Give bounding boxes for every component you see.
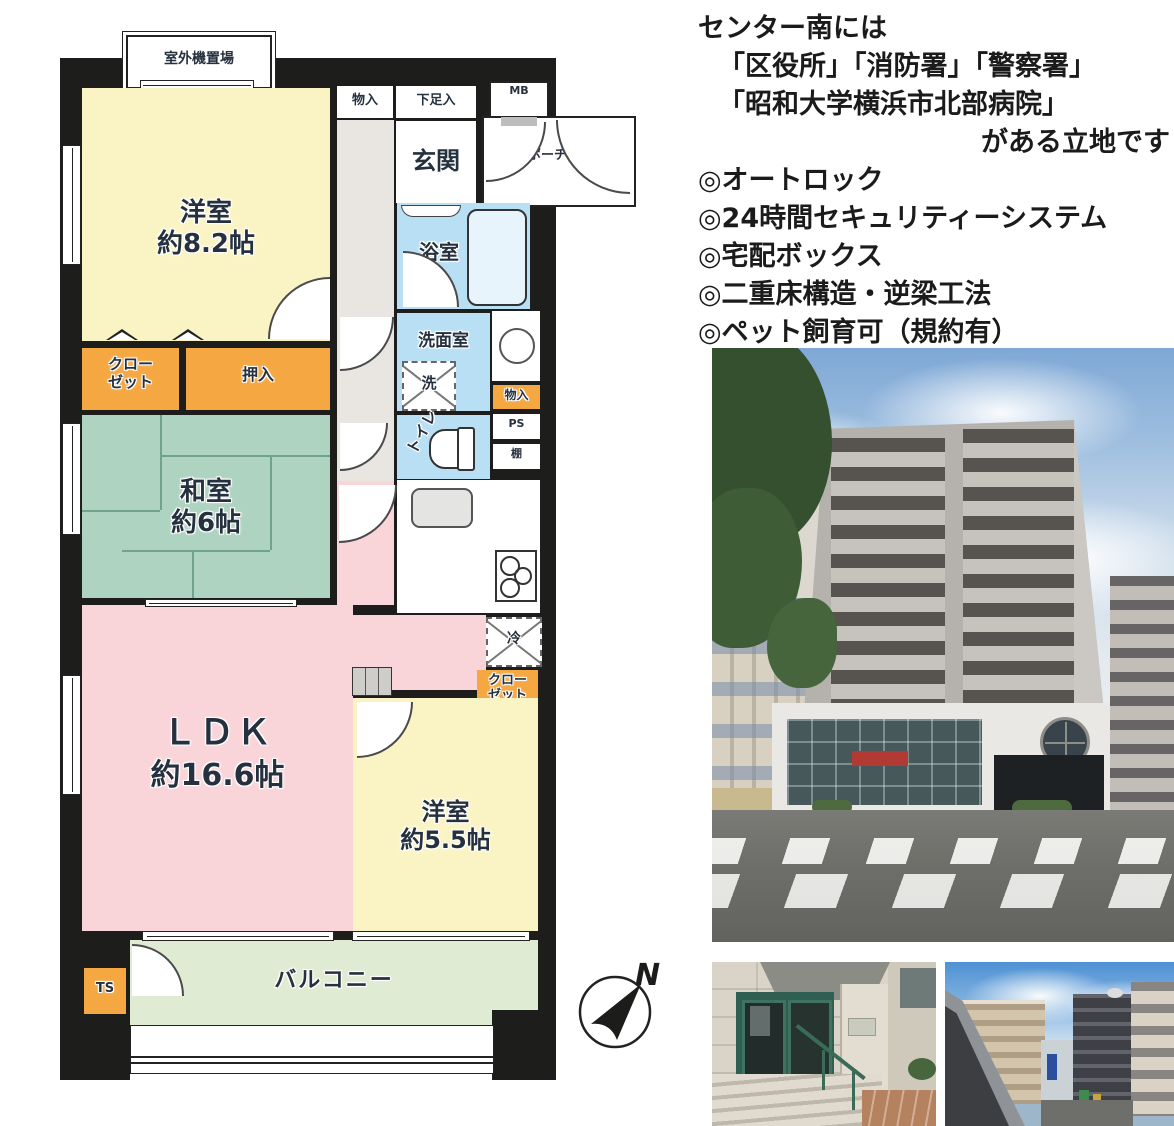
upper-window (900, 968, 936, 1008)
window (62, 423, 81, 535)
tree-branch (767, 598, 837, 688)
real-estate-flyer: 室外機置場 洋室 約8.2帖 物入 下足入 玄関 ポーチ (0, 0, 1174, 1126)
shelf: 棚 (493, 444, 540, 469)
japanese-room-name: 和室 (180, 477, 232, 507)
blue-sign (1047, 1054, 1057, 1080)
storage-top: 物入 (337, 86, 393, 118)
headline-line2: 「区役所」「消防署」「警察署」 (698, 48, 1174, 86)
porch: ポーチ (482, 116, 636, 207)
door-swing-icon (486, 122, 546, 182)
outdoor-unit-label: 室外機置場 (128, 51, 270, 68)
entrance-photo (712, 962, 936, 1126)
floorplan: 室外機置場 洋室 約8.2帖 物入 下足入 玄関 ポーチ (60, 33, 664, 1083)
red-sign (852, 751, 908, 766)
right-building (1110, 576, 1174, 816)
kitchen-sink-icon (411, 488, 473, 528)
feature-item: ◎ペット飼育可（規約有） (698, 314, 1174, 352)
north-label: N (635, 958, 660, 993)
compass: N (577, 970, 667, 1050)
wall-corner-br (492, 1010, 556, 1080)
washitsu-opening (145, 599, 297, 607)
trunk-label: TS (84, 981, 126, 996)
wall-corner-bl (60, 1010, 130, 1080)
brick-path (862, 1090, 936, 1126)
building-exterior-photo (712, 348, 1174, 942)
balcony-view-photo (945, 962, 1174, 1126)
washer-label: 洗 (404, 375, 454, 393)
ldk-name: ＬＤＫ (162, 713, 273, 753)
storage-mid-label: 物入 (493, 388, 540, 402)
meter-box-label: MB (491, 85, 547, 98)
washroom-label: 洗面室 (397, 331, 490, 351)
kitchen (397, 480, 540, 613)
pipe-space-label: PS (493, 418, 540, 431)
japanese-room: 和室 約6帖 (82, 415, 330, 598)
door-swing-icon (132, 944, 184, 996)
bathroom: 浴室 (397, 203, 530, 309)
handrail-post (852, 1070, 855, 1110)
location-description: センター南には 「区役所」「消防署」「警察署」 「昭和大学横浜市北部病院」 があ… (698, 10, 1174, 352)
folding-door-icon (172, 329, 204, 340)
bath-counter (401, 205, 461, 217)
main-tower (804, 420, 1104, 712)
road (712, 810, 1174, 942)
door-swing-icon (357, 702, 413, 758)
bedroom1: 洋室 約8.2帖 (82, 88, 330, 341)
steps (712, 1074, 882, 1126)
toilet-tank-icon (457, 427, 475, 471)
washing-machine-icon: 洗 (402, 361, 456, 411)
trunk-space: TS (84, 968, 126, 1014)
entrance-hall: 玄関 (396, 121, 476, 203)
fridge-label: 冷 (488, 631, 540, 648)
bedroom2-name: 洋室 (422, 798, 470, 826)
counter-block (352, 667, 392, 696)
shrub (908, 1058, 936, 1080)
bedroom2: 洋室 約5.5帖 (353, 698, 538, 931)
right-building (1131, 982, 1174, 1116)
bedroom1-name: 洋室 (180, 198, 232, 228)
bathtub-icon (467, 209, 527, 306)
street (1041, 1100, 1133, 1126)
feature-item: ◎宅配ボックス (698, 238, 1174, 276)
meter-box: MB (489, 81, 549, 118)
fridge-space: 冷 (486, 617, 542, 667)
balcony-door-window (142, 931, 334, 941)
building-base (772, 703, 1117, 813)
balcony-railing (130, 1025, 494, 1074)
door-swing-icon (268, 277, 330, 339)
stove-icon (495, 550, 537, 602)
folding-door-icon (106, 329, 138, 340)
oshiire-label: 押入 (186, 366, 330, 385)
ldk-size: 約16.6帖 (150, 758, 284, 793)
balcony-label: バルコニー (130, 968, 538, 994)
closet1-label: クロー ゼット (82, 356, 179, 391)
shoe-storage: 下足入 (396, 86, 476, 118)
balcony: バルコニー (130, 940, 538, 1025)
headline-line4: がある立地です (698, 124, 1174, 162)
wash-basin (492, 311, 540, 381)
meter-box-sill (501, 117, 537, 126)
toilet-room: トイレ (397, 415, 490, 479)
feature-item: ◎オートロック (698, 162, 1174, 200)
window (62, 675, 81, 795)
closet1: クロー ゼット (82, 348, 179, 410)
feature-item: ◎24時間セキュリティーシステム (698, 200, 1174, 238)
handrail-post (822, 1050, 825, 1090)
ldk: ＬＤＫ 約16.6帖 (82, 605, 353, 931)
balcony-door-window (352, 931, 530, 941)
door-swing-icon (556, 120, 630, 194)
storage-top-label: 物入 (337, 93, 393, 108)
oshiire: 押入 (186, 348, 330, 410)
feature-item: ◎二重床構造・逆梁工法 (698, 276, 1174, 314)
pipe-space: PS (493, 414, 540, 439)
shoe-storage-label: 下足入 (396, 93, 476, 108)
bedroom1-size: 約8.2帖 (157, 229, 255, 259)
wash-basin-icon (499, 328, 535, 364)
headline-line3: 「昭和大学横浜市北部病院」 (698, 86, 1174, 124)
plaque (848, 1018, 876, 1036)
storage-mid: 物入 (493, 385, 540, 409)
dark-building (1073, 994, 1131, 1114)
bedroom2-size: 約5.5帖 (400, 826, 491, 854)
headline-line1: センター南には (698, 10, 1174, 48)
window (62, 145, 81, 265)
entrance-label: 玄関 (396, 147, 476, 175)
japanese-room-size: 約6帖 (171, 508, 241, 538)
shelf-label: 棚 (493, 448, 540, 461)
